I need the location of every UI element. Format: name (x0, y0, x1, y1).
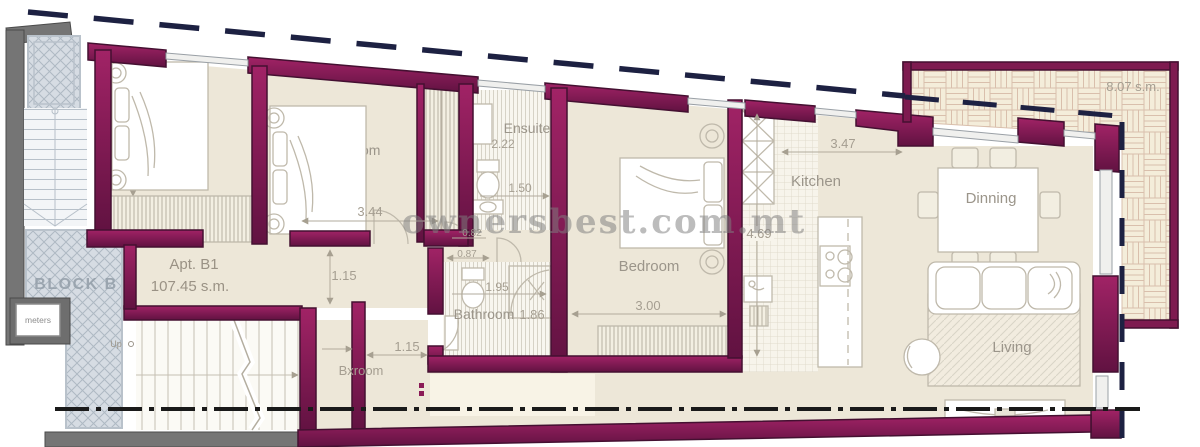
lower-stairs (129, 320, 300, 430)
dim-195: 1.95 (485, 280, 509, 294)
armchair (904, 339, 940, 375)
apartment-area: 107.45 s.m. (151, 278, 229, 295)
kitchen-sink-icon (744, 276, 772, 302)
kitchen-tall-units (742, 110, 774, 204)
ensuite-toilet-icon (477, 160, 499, 198)
terrace-wall-top (903, 62, 1178, 70)
kitchen-label: Kitchen (791, 173, 841, 190)
wall-living-right (1093, 276, 1118, 372)
door-living-terrace (1096, 376, 1108, 408)
dim-347: 3.47 (830, 136, 855, 151)
terrace-wall-bottom (1122, 320, 1178, 328)
meters-label: meters (25, 315, 51, 325)
bedroom3-label: Bedroom (619, 258, 680, 275)
sofa-cushion (936, 267, 980, 309)
lift-shaft (28, 36, 80, 110)
wall-bed1-bed2 (252, 66, 267, 244)
dining-chair (990, 148, 1016, 168)
apartment-name: Apt. B1 (169, 256, 218, 273)
terrace-wall-right (1170, 62, 1178, 328)
dim-300: 3.00 (635, 298, 660, 313)
floor-plan-svg: Bedroom 3.82 Bedroom 3.03 (0, 0, 1200, 447)
ensuite-label: Ensuite (504, 120, 551, 136)
dining-table (938, 168, 1038, 252)
bathroom-label: Bathroom (454, 306, 515, 322)
living-label: Living (992, 339, 1031, 356)
wall-corridor-bottom (124, 306, 302, 320)
dim-186: 1.86 (519, 307, 544, 322)
dining-label: Dinning (966, 190, 1017, 207)
sofa-cushion (1028, 267, 1072, 309)
wall-bathroom-bottom (428, 356, 742, 372)
kitchen-counter (818, 217, 862, 367)
dining-chair (952, 148, 978, 168)
bed-1 (106, 62, 208, 190)
bathroom-toilet-icon (462, 268, 484, 308)
block-label: BLOCK B (34, 276, 117, 293)
wall-bxroom-left (300, 308, 316, 432)
wall-bedroom1-left (95, 50, 111, 232)
dim-corridor-115: 1.15 (331, 268, 356, 283)
common-wall-bottom (45, 432, 300, 447)
terrace-wall-left (903, 62, 911, 122)
wall-bedroom1-bottom (87, 230, 203, 247)
sofa-cushion (982, 267, 1026, 309)
wall-bedroom2-bottom (290, 231, 370, 246)
window-living-right (1100, 170, 1112, 274)
dining-chair (918, 192, 938, 218)
wall-bottom-right-corner (1091, 410, 1121, 438)
dim-222: 2.22 (491, 137, 515, 151)
dim-344: 3.44 (357, 204, 382, 219)
dim-150: 1.50 (508, 181, 532, 195)
dining-chair (1040, 192, 1060, 218)
wall-bathroom-left-a (428, 248, 443, 314)
wall-corridor-left (124, 245, 136, 309)
wardrobe-3 (598, 326, 732, 356)
bxroom-label: Bxroom (339, 363, 384, 378)
bed-2 (264, 106, 366, 234)
kitchen-appliance (750, 306, 768, 326)
wall-terrace-pier (1095, 124, 1119, 172)
stairs-up-label: Up (110, 339, 122, 349)
upper-stairs (24, 108, 87, 226)
watermark: ownersbest.com.mt (402, 202, 806, 242)
wall-dining-terrace (1018, 118, 1064, 146)
marker-dots (419, 391, 424, 396)
window-dining (933, 128, 1018, 143)
marker-dots (419, 383, 424, 388)
floor-plan: Bedroom 3.82 Bedroom 3.03 (0, 0, 1200, 447)
dim-087: 0.87 (457, 249, 477, 260)
terrace-area: 8.07 s.m. (1106, 79, 1159, 94)
dim-bxroom-115: 1.15 (394, 339, 419, 354)
